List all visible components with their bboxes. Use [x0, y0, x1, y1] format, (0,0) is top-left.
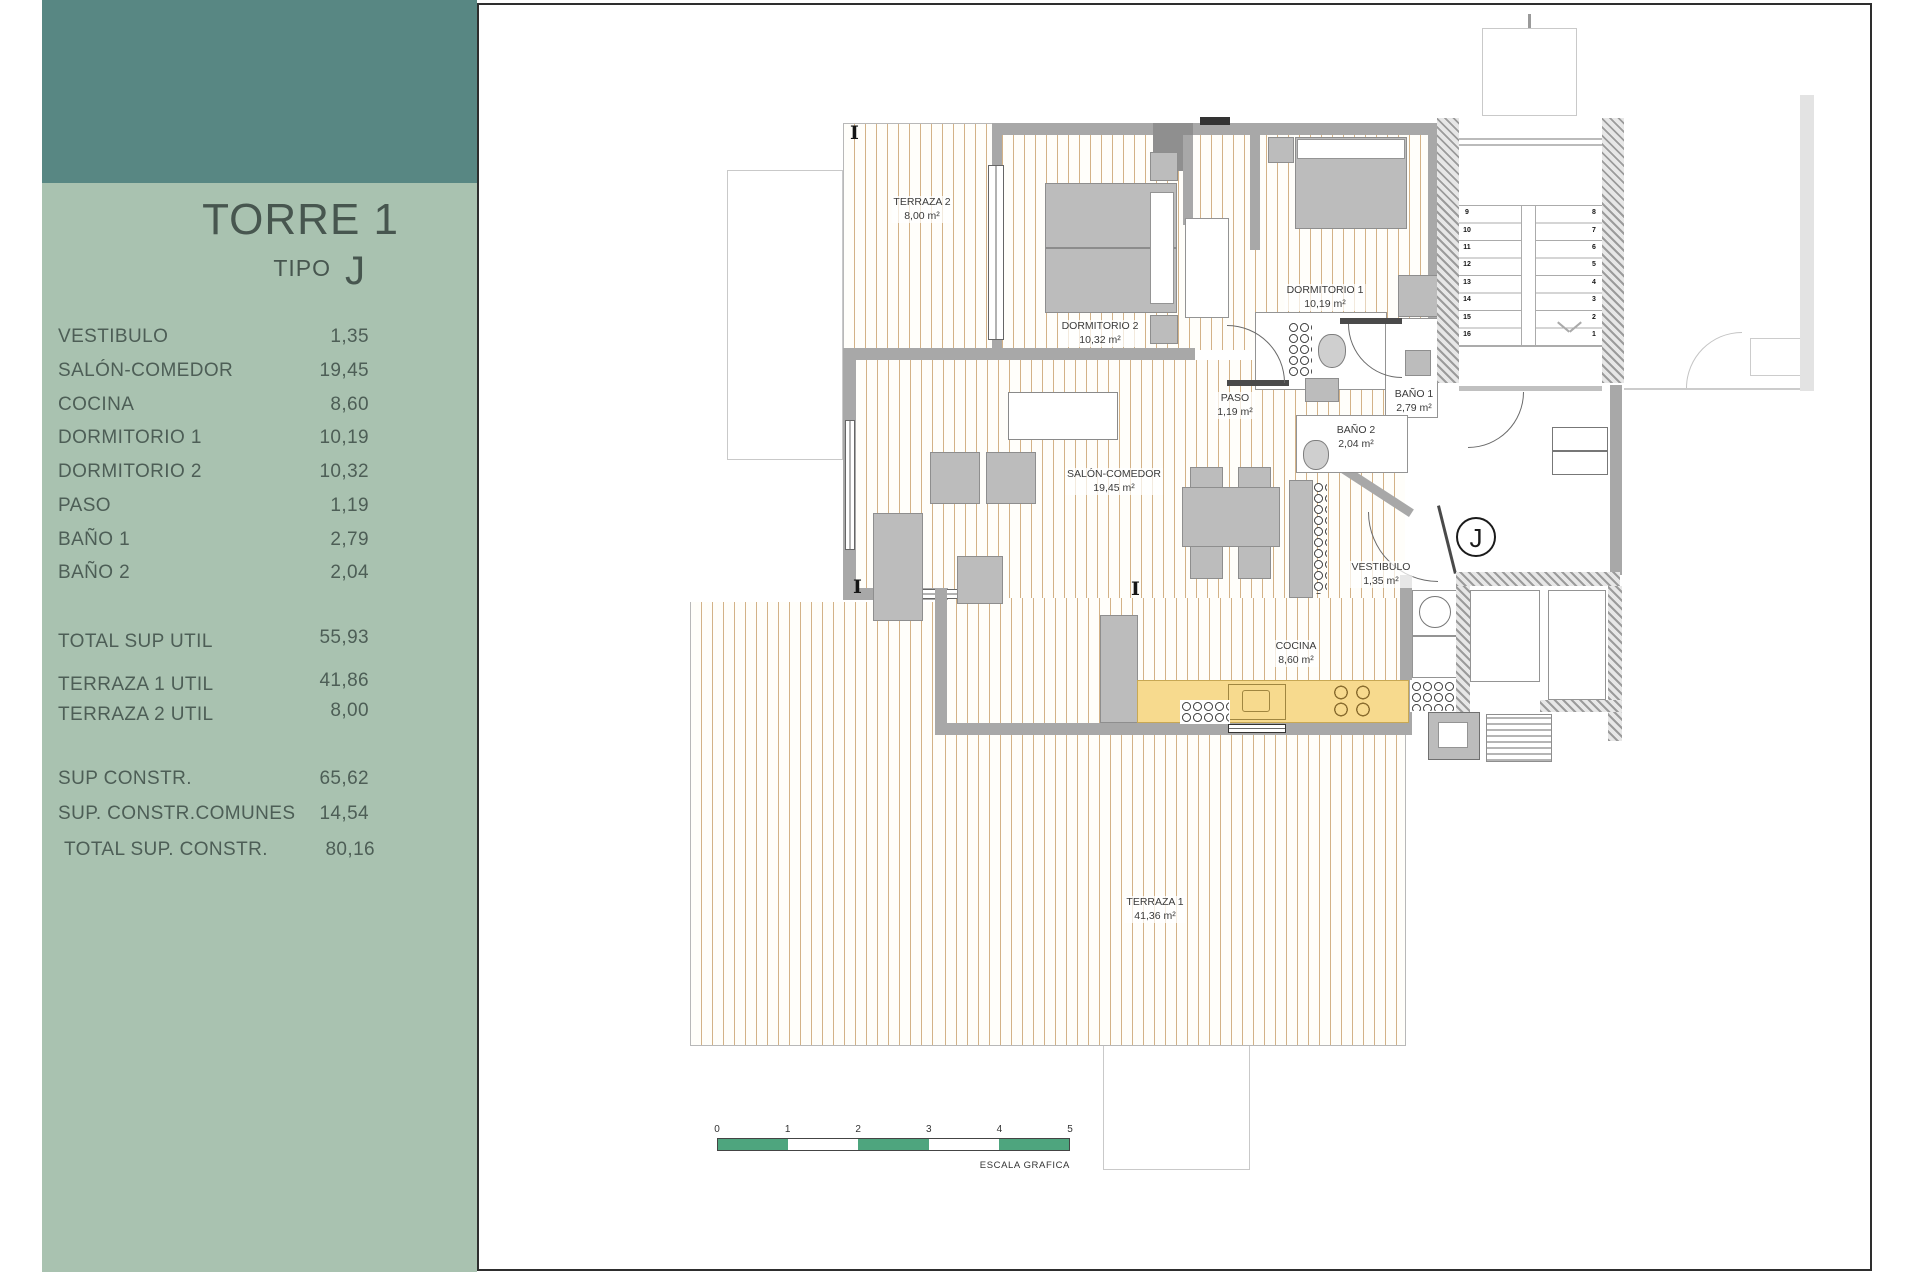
hall-cabinet — [1552, 451, 1608, 475]
dresser — [1398, 275, 1438, 317]
row-value: 80,16 — [325, 839, 375, 861]
row-label: TERRAZA 2 UTIL — [58, 704, 214, 726]
hall-cabinet — [1552, 427, 1608, 451]
stair-landing-line — [1459, 144, 1602, 146]
wall — [1250, 135, 1260, 250]
scale-segment — [788, 1139, 858, 1150]
elevator-wall — [1456, 572, 1620, 586]
room-area: 10,19 m² — [1287, 298, 1364, 312]
stair-divider — [1521, 205, 1536, 346]
shower-icon — [1288, 322, 1312, 378]
room-name: TERRAZA 2 — [893, 196, 950, 210]
sink-icon — [1405, 350, 1431, 376]
row-value: 10,32 — [319, 461, 369, 483]
row-value: 19,45 — [319, 360, 369, 382]
sink-basin — [1438, 722, 1468, 748]
sink-basin — [1242, 690, 1270, 712]
row-value: 55,93 — [319, 627, 369, 649]
chair — [1238, 544, 1271, 579]
sink-icon — [1305, 378, 1339, 402]
stair-step-number: 2 — [1588, 314, 1600, 321]
stair-wall — [1602, 118, 1624, 383]
stair-step-number: 15 — [1461, 314, 1473, 321]
sideboard — [1008, 392, 1118, 440]
scale-segment — [718, 1139, 788, 1150]
stair-step-number: 5 — [1588, 261, 1600, 268]
dishwasher-icon — [1181, 701, 1229, 723]
stair-step-number: 3 — [1588, 296, 1600, 303]
wall — [935, 588, 947, 735]
row-label: PASO — [58, 495, 111, 517]
room-name: BAÑO 1 — [1395, 388, 1434, 402]
row-label: TERRAZA 1 UTIL — [58, 674, 214, 696]
constructed-row: SUP CONSTR.65,62 — [58, 768, 369, 792]
nightstand — [1150, 152, 1178, 181]
room-area: 8,60 m² — [1276, 654, 1317, 668]
window — [1228, 724, 1286, 733]
stair-step-number: 13 — [1461, 279, 1473, 286]
fridge — [1100, 615, 1138, 723]
room-name: PASO — [1217, 392, 1253, 406]
scale-bar-segments — [717, 1138, 1070, 1151]
room-label-bano1: BAÑO 12,79 m² — [1393, 388, 1436, 415]
room-name: SALÓN-COMEDOR — [1067, 468, 1161, 482]
wall — [935, 723, 1410, 735]
area-row: COCINA8,60 — [58, 394, 369, 418]
wardrobe — [1185, 218, 1229, 318]
area-row: DORMITORIO 210,32 — [58, 461, 369, 485]
ibeam-column-icon: I — [853, 578, 862, 597]
room-label-bano2: BAÑO 22,04 m² — [1335, 424, 1378, 451]
radiator-icon — [1313, 482, 1327, 594]
floor-plan-page: TORRE 1 TIPOJ VESTIBULO1,35 SALÓN-COMEDO… — [0, 0, 1920, 1280]
armchair — [930, 452, 980, 504]
sofa — [873, 513, 923, 621]
scale-segment — [929, 1139, 999, 1150]
row-value: 14,54 — [319, 803, 369, 825]
stair-step-number: 6 — [1588, 244, 1600, 251]
wall — [1183, 135, 1193, 225]
scale-tick: 3 — [926, 1124, 932, 1135]
row-label: DORMITORIO 1 — [58, 427, 202, 449]
room-name: DORMITORIO 1 — [1287, 284, 1364, 298]
adjacent-terrace-outline — [727, 170, 843, 460]
stair-step-number: 14 — [1461, 296, 1473, 303]
row-label: SUP. CONSTR.COMUNES — [58, 803, 295, 825]
bed-pillows — [1150, 192, 1174, 304]
room-label-dormitorio1: DORMITORIO 110,19 m² — [1285, 284, 1366, 311]
elevator-cabin — [1470, 590, 1540, 682]
upper-shaft-outline — [1482, 28, 1577, 116]
unit-marker-badge: J — [1456, 517, 1496, 557]
total-row: TOTAL SUP UTIL55,93 — [58, 631, 369, 655]
room-area: 8,00 m² — [893, 210, 950, 224]
appliance-box — [1412, 636, 1458, 678]
tipo-label: TIPO — [273, 255, 331, 281]
room-label-terraza1: TERRAZA 141,36 m² — [1124, 896, 1185, 923]
constructed-row: TOTAL SUP. CONSTR.80,16 — [64, 839, 369, 863]
window-mark — [1200, 117, 1230, 125]
room-label-paso: PASO1,19 m² — [1215, 392, 1255, 419]
burner-icon — [1411, 681, 1455, 711]
stair-step-number: 11 — [1461, 244, 1473, 251]
row-value: 65,62 — [319, 768, 369, 790]
stair-step-number: 9 — [1461, 209, 1473, 216]
stair-step-number: 8 — [1588, 209, 1600, 216]
room-name: BAÑO 2 — [1337, 424, 1376, 438]
window — [845, 420, 855, 550]
stair-landing-line — [1459, 138, 1602, 140]
scale-tick: 1 — [785, 1124, 791, 1135]
area-row: DORMITORIO 110,19 — [58, 427, 369, 451]
total-row: TERRAZA 1 UTIL41,86 — [58, 674, 369, 698]
neighbor-wall — [1800, 95, 1814, 391]
room-name: VESTIBULO — [1352, 561, 1411, 575]
scale-bar: 0 1 2 3 4 5 ESCALA GRAFICA — [717, 1124, 1070, 1176]
window — [988, 165, 1004, 340]
room-area: 41,36 m² — [1126, 910, 1183, 924]
area-row: BAÑO 22,04 — [58, 562, 369, 586]
total-row: TERRAZA 2 UTIL8,00 — [58, 704, 369, 728]
elevator-wall — [1608, 586, 1622, 741]
row-value: 8,60 — [330, 394, 369, 416]
terraza1-floor-main — [935, 735, 1406, 1046]
row-label: VESTIBULO — [58, 326, 168, 348]
row-label: COCINA — [58, 394, 134, 416]
row-value: 2,79 — [330, 529, 369, 551]
ibeam-column-icon: I — [850, 124, 859, 143]
area-row: BAÑO 12,79 — [58, 529, 369, 553]
room-area: 1,35 m² — [1352, 575, 1411, 589]
toilet-icon — [1303, 440, 1329, 470]
sidebar-panel: TORRE 1 TIPOJ VESTIBULO1,35 SALÓN-COMEDO… — [42, 183, 477, 1272]
elevator-shaft — [1548, 590, 1606, 700]
terraza1-floor-left — [690, 602, 936, 1046]
unit-type: TIPOJ — [273, 249, 365, 294]
stair-step-number: 12 — [1461, 261, 1473, 268]
room-area: 10,32 m² — [1062, 334, 1139, 348]
room-label-terraza2: TERRAZA 28,00 m² — [891, 196, 952, 223]
armchair — [986, 452, 1036, 504]
row-label: TOTAL SUP UTIL — [58, 631, 213, 653]
constructed-row: SUP. CONSTR.COMUNES14,54 — [58, 803, 369, 827]
stair-step-number: 16 — [1461, 331, 1473, 338]
area-row: SALÓN-COMEDOR19,45 — [58, 360, 369, 384]
hob-icon — [1330, 684, 1374, 718]
chair — [1190, 544, 1223, 579]
nightstand — [1268, 137, 1294, 163]
row-value: 10,19 — [319, 427, 369, 449]
stair-sill — [1459, 386, 1602, 391]
row-value: 41,86 — [319, 670, 369, 692]
dining-table — [1182, 487, 1280, 547]
row-label: TOTAL SUP. CONSTR. — [64, 839, 268, 861]
stair-step-number: 10 — [1461, 227, 1473, 234]
room-area: 2,04 m² — [1337, 438, 1376, 452]
room-label-salon-comedor: SALÓN-COMEDOR19,45 m² — [1065, 468, 1163, 495]
room-label-vestibulo: VESTIBULO1,35 m² — [1350, 561, 1413, 588]
pouf — [957, 556, 1003, 604]
row-value: 1,19 — [330, 495, 369, 517]
neighbor-wall-line — [1624, 388, 1810, 390]
wall — [1610, 385, 1622, 575]
scale-tick: 4 — [997, 1124, 1003, 1135]
grate-icon — [1486, 714, 1552, 762]
scale-segment — [999, 1139, 1069, 1150]
scale-tick: 5 — [1067, 1124, 1073, 1135]
row-label: BAÑO 1 — [58, 529, 130, 551]
stair-step-number: 7 — [1588, 227, 1600, 234]
room-area: 2,79 m² — [1395, 402, 1434, 416]
washer-drum-icon — [1419, 596, 1451, 628]
row-label: BAÑO 2 — [58, 562, 130, 584]
shaft-tick — [1528, 14, 1531, 28]
row-label: DORMITORIO 2 — [58, 461, 202, 483]
room-area: 19,45 m² — [1067, 482, 1161, 496]
terraza2-floor — [843, 123, 994, 360]
row-value: 2,04 — [330, 562, 369, 584]
elevator-wall — [1540, 700, 1622, 712]
scale-tick: 0 — [714, 1124, 720, 1135]
room-name: DORMITORIO 2 — [1062, 320, 1139, 334]
room-label-cocina: COCINA8,60 m² — [1274, 640, 1319, 667]
tall-cabinet — [1289, 480, 1313, 598]
scale-caption: ESCALA GRAFICA — [980, 1160, 1070, 1171]
page-title: TORRE 1 — [202, 195, 399, 245]
bed-pillows — [1297, 139, 1405, 159]
wall — [856, 348, 1195, 360]
stair-step-number: 4 — [1588, 279, 1600, 286]
row-value: 8,00 — [330, 700, 369, 722]
scale-tick: 2 — [855, 1124, 861, 1135]
scale-segment — [858, 1139, 928, 1150]
room-name: TERRAZA 1 — [1126, 896, 1183, 910]
row-value: 1,35 — [330, 326, 369, 348]
room-area: 1,19 m² — [1217, 406, 1253, 420]
room-label-dormitorio2: DORMITORIO 210,32 m² — [1060, 320, 1141, 347]
room-name: COCINA — [1276, 640, 1317, 654]
stair-step-number: 1 — [1588, 331, 1600, 338]
lower-structure-outline — [1103, 1045, 1250, 1170]
row-label: SALÓN-COMEDOR — [58, 360, 233, 382]
area-row: PASO1,19 — [58, 495, 369, 519]
toilet-icon — [1318, 334, 1346, 368]
row-label: SUP CONSTR. — [58, 768, 192, 790]
sidebar-header-block — [42, 0, 477, 183]
stair-wall — [1437, 118, 1459, 383]
area-row: VESTIBULO1,35 — [58, 326, 369, 350]
ibeam-column-icon: I — [1131, 580, 1140, 599]
tipo-value: J — [345, 249, 365, 293]
nightstand — [1150, 315, 1178, 344]
